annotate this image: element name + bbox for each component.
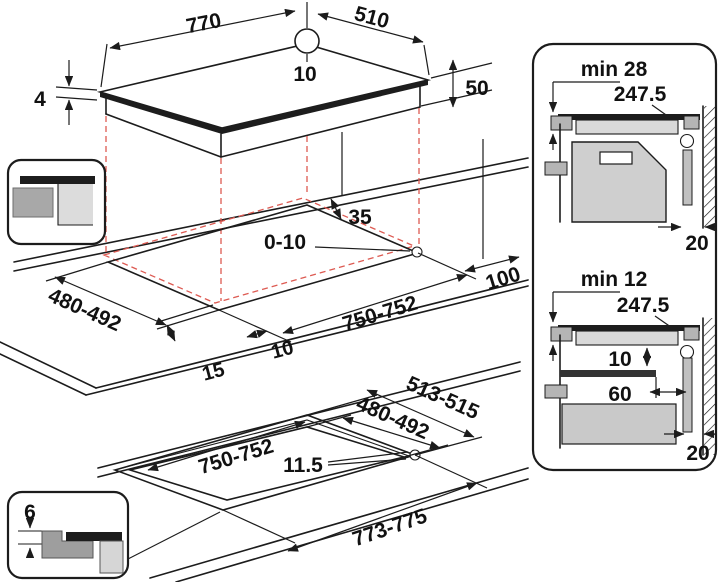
dim-shelf-setback: 60 <box>608 383 631 406</box>
dim-depth: 510 <box>352 2 392 33</box>
dim-wall-gap-bottom: 20 <box>686 442 709 465</box>
dim-step-depth: 6 <box>24 501 36 524</box>
dim-right-clearance: 100 <box>483 263 523 295</box>
hob-isometric-view: 10 770 510 4 50 <box>34 2 492 157</box>
dim-body-height: 50 <box>465 77 488 100</box>
bracket-left-bottom <box>545 385 567 398</box>
dim-min-clearance-bottom: min 12 <box>581 268 648 291</box>
dim-recess-width: 773-775 <box>350 504 431 551</box>
icon-leader <box>126 512 220 560</box>
dim-back-clearance: 35 <box>348 206 372 229</box>
bracket-left-top <box>545 162 567 175</box>
cable-hole-mark <box>295 29 319 53</box>
dim-board-gap: 10 <box>608 348 631 371</box>
clamp-right-bottom <box>684 327 699 340</box>
worktop-section-top <box>576 120 678 134</box>
dim-min-clearance-top: min 28 <box>581 58 648 81</box>
surface-mount-icon <box>8 160 105 244</box>
installation-diagram-page: 10 770 510 4 50 <box>0 0 720 582</box>
worktop-cutout-view: 35 0-10 480-492 750-752 100 15 10 <box>0 108 528 395</box>
dim-glass-thickness: 4 <box>34 88 46 111</box>
clamp-left-bottom <box>551 327 572 341</box>
deflector-bottom <box>683 358 692 432</box>
worktop-section-bottom <box>576 331 678 345</box>
clamp-right-top <box>684 116 699 129</box>
separator-shelf <box>560 370 656 377</box>
hob-glass-section-top <box>558 114 700 120</box>
icon-hob-bar <box>20 176 95 184</box>
flush-recess-view: 750-752 11.5 480-492 513-515 773-775 <box>98 362 528 582</box>
dim-cutout-depth: 480-492 <box>45 284 125 336</box>
edge-gap-point <box>412 247 422 257</box>
icon-worktop-block <box>58 184 93 225</box>
dim-width: 770 <box>184 9 223 38</box>
dim-side-overhang: 10 <box>269 337 296 364</box>
deflector-top <box>683 150 692 205</box>
flush-mount-icon: 6 <box>8 492 128 578</box>
hob-glass-top <box>100 44 428 128</box>
icon-oven-block <box>13 188 53 217</box>
dim-center-distance-top: 247.5 <box>614 83 667 106</box>
hob-glass-section-bottom <box>558 325 700 331</box>
dim-hole-offset: 10 <box>293 63 316 86</box>
drawer-box <box>562 404 676 444</box>
wall-hatch-top <box>704 106 716 228</box>
installation-diagram: 10 770 510 4 50 <box>0 0 720 582</box>
dim-step-width: 11.5 <box>283 454 323 477</box>
icon-worktop-step <box>100 541 123 573</box>
dim-center-distance-bottom: 247.5 <box>617 294 670 317</box>
oven-vent <box>600 152 632 164</box>
section-views-panel: min 28 247.5 20 min 12 <box>533 44 716 470</box>
seal-circle-top <box>681 135 694 148</box>
dim-cutout-width: 750-752 <box>340 292 420 337</box>
seal-circle-bottom <box>681 346 694 359</box>
clamp-left-top <box>551 116 572 130</box>
icon-flush-glass <box>66 532 122 541</box>
dim-wall-gap-top: 20 <box>685 232 708 255</box>
dim-edge-gap: 0-10 <box>264 231 306 254</box>
dim-front-overhang: 15 <box>200 359 227 386</box>
